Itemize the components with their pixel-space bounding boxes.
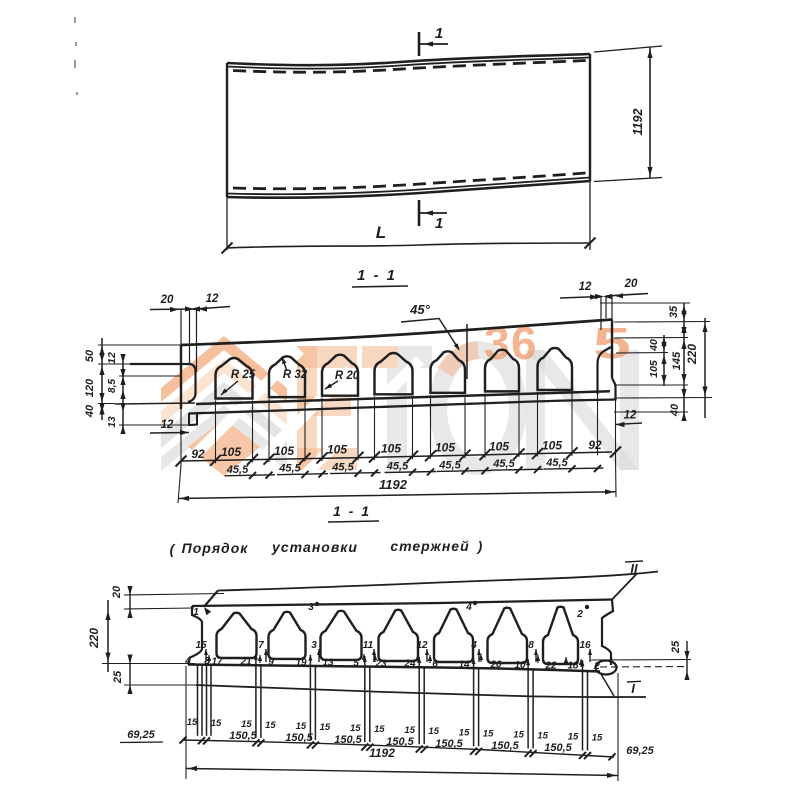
- svg-text:3: 3: [311, 640, 317, 651]
- svg-text:2: 2: [593, 661, 600, 672]
- svg-text:15: 15: [483, 728, 494, 739]
- svg-text:105: 105: [327, 443, 347, 457]
- svg-text:I: I: [631, 681, 635, 696]
- svg-text:18: 18: [567, 661, 579, 672]
- svg-text:12: 12: [624, 410, 637, 422]
- svg-text:установки: установки: [271, 539, 358, 555]
- svg-text:12: 12: [206, 293, 219, 305]
- svg-text:45,5: 45,5: [386, 461, 409, 473]
- svg-text:5: 5: [353, 658, 359, 669]
- svg-text:105: 105: [435, 441, 455, 455]
- svg-text:15: 15: [568, 732, 579, 743]
- svg-text:11: 11: [363, 640, 374, 651]
- svg-text:69,25: 69,25: [626, 745, 654, 757]
- svg-text:12: 12: [161, 419, 174, 431]
- svg-text:45,5: 45,5: [492, 458, 515, 470]
- svg-text:13: 13: [107, 416, 118, 428]
- svg-text:15: 15: [320, 722, 331, 733]
- svg-text:L: L: [376, 223, 386, 242]
- svg-text:15: 15: [537, 730, 548, 741]
- svg-text:12: 12: [579, 281, 592, 293]
- svg-text:24: 24: [403, 659, 416, 670]
- svg-text:1192: 1192: [631, 109, 645, 136]
- svg-text:3: 3: [308, 602, 314, 613]
- svg-text:II: II: [630, 561, 638, 576]
- svg-text:21: 21: [239, 657, 252, 668]
- svg-text:4: 4: [184, 656, 191, 667]
- svg-text:7: 7: [258, 640, 264, 651]
- svg-text:150,5: 150,5: [491, 740, 519, 752]
- svg-text:13: 13: [322, 658, 334, 669]
- svg-text:92: 92: [588, 438, 602, 452]
- svg-text:105: 105: [489, 439, 509, 453]
- svg-text:20: 20: [111, 585, 123, 599]
- svg-text:15: 15: [296, 721, 307, 732]
- svg-text:50: 50: [84, 349, 96, 362]
- svg-text:15: 15: [241, 719, 252, 730]
- svg-text:25: 25: [112, 670, 124, 684]
- svg-text:40: 40: [84, 404, 96, 418]
- svg-text:15: 15: [404, 725, 415, 736]
- svg-text:40: 40: [669, 403, 681, 417]
- svg-text:20: 20: [489, 660, 502, 671]
- svg-text:15: 15: [374, 724, 385, 735]
- svg-text:6: 6: [432, 659, 438, 670]
- svg-text:15: 15: [428, 726, 439, 737]
- svg-text:45°: 45°: [409, 302, 430, 317]
- svg-text:35: 35: [668, 305, 680, 318]
- svg-text:22: 22: [544, 660, 557, 671]
- svg-text:14: 14: [458, 659, 470, 670]
- svg-text:1: 1: [193, 607, 199, 618]
- svg-text:105: 105: [221, 445, 241, 459]
- svg-text:105: 105: [381, 442, 401, 456]
- svg-text:4: 4: [465, 602, 472, 613]
- svg-text:15: 15: [195, 640, 207, 651]
- svg-text:12: 12: [416, 640, 428, 651]
- svg-text:1: 1: [435, 215, 443, 232]
- svg-text:10: 10: [514, 660, 526, 671]
- svg-text:8: 8: [528, 640, 534, 651]
- svg-text:15: 15: [350, 723, 361, 734]
- svg-text:45,5: 45,5: [545, 457, 568, 469]
- svg-text:16: 16: [579, 640, 591, 651]
- svg-text:15: 15: [513, 729, 524, 740]
- svg-text:150,5: 150,5: [229, 730, 257, 742]
- svg-text:45,5: 45,5: [331, 462, 354, 474]
- svg-text:17: 17: [211, 656, 223, 667]
- svg-text:69,25: 69,25: [127, 729, 155, 741]
- svg-text:12: 12: [106, 352, 118, 364]
- svg-text:150,5: 150,5: [285, 732, 313, 744]
- svg-text:15: 15: [459, 727, 470, 738]
- svg-text:15: 15: [265, 720, 276, 731]
- svg-text:9: 9: [268, 657, 274, 668]
- svg-text:220: 220: [87, 628, 101, 649]
- svg-text:15: 15: [187, 717, 198, 728]
- svg-text:150,5: 150,5: [544, 742, 572, 754]
- svg-text:R 20: R 20: [335, 370, 360, 382]
- svg-text:150,5: 150,5: [435, 738, 463, 750]
- svg-text:45,5: 45,5: [278, 463, 301, 475]
- svg-text:120: 120: [84, 378, 96, 397]
- svg-text:20: 20: [160, 294, 174, 306]
- svg-text:1 - 1: 1 - 1: [357, 267, 397, 284]
- svg-text:45,5: 45,5: [438, 459, 461, 471]
- svg-text:2: 2: [576, 609, 583, 620]
- svg-text:105: 105: [542, 438, 562, 452]
- svg-text:1 - 1: 1 - 1: [333, 503, 371, 519]
- svg-text:Порядок: Порядок: [182, 540, 249, 556]
- svg-text:150,5: 150,5: [334, 734, 362, 746]
- svg-text:4: 4: [470, 640, 477, 651]
- svg-text:19: 19: [295, 657, 307, 668]
- svg-text:25: 25: [670, 640, 682, 654]
- svg-text:40: 40: [648, 339, 660, 352]
- svg-text:105: 105: [648, 360, 660, 378]
- svg-text:1: 1: [435, 25, 443, 42]
- svg-text:R 25: R 25: [231, 369, 256, 381]
- svg-text:15: 15: [592, 733, 603, 744]
- svg-text:105: 105: [274, 444, 294, 458]
- svg-text:1192: 1192: [379, 477, 408, 492]
- svg-text:20: 20: [624, 278, 638, 290]
- svg-text:15: 15: [211, 718, 222, 729]
- svg-text:стержней: стержней: [390, 538, 469, 554]
- svg-text:92: 92: [191, 447, 205, 461]
- svg-text:45,5: 45,5: [226, 464, 249, 476]
- svg-text:1192: 1192: [369, 746, 395, 760]
- svg-text:145: 145: [671, 351, 683, 370]
- svg-text:220: 220: [685, 344, 699, 365]
- svg-text:): ): [476, 538, 483, 554]
- svg-text:8,5: 8,5: [107, 379, 118, 393]
